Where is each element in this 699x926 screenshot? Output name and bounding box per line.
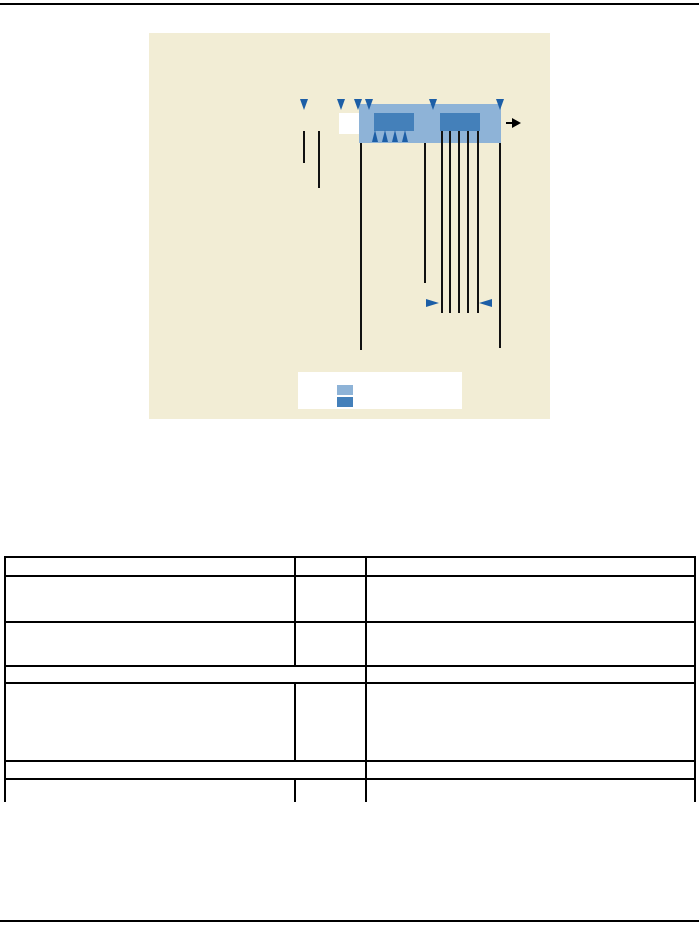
figure-canvas — [149, 33, 550, 419]
data-block — [440, 113, 480, 131]
event-marker-down-icon — [300, 99, 308, 110]
spec-table — [4, 556, 696, 802]
callout-line — [360, 143, 362, 350]
event-marker-down-icon — [496, 99, 504, 110]
event-marker-up-icon — [402, 130, 408, 142]
table-cell — [6, 577, 296, 621]
table-row — [6, 780, 694, 802]
table-cell — [6, 558, 296, 575]
event-marker-down-icon — [337, 99, 345, 110]
callout-line — [477, 131, 479, 313]
callout-line — [449, 131, 451, 313]
table-cell — [367, 623, 694, 665]
table-cell — [367, 558, 694, 575]
event-marker-up-icon — [382, 130, 388, 142]
table-cell — [6, 762, 367, 778]
table-cell — [367, 667, 694, 682]
event-marker-up-icon — [392, 130, 398, 142]
table-row — [6, 558, 694, 577]
callout-line — [467, 131, 469, 313]
table-cell — [296, 623, 367, 665]
data-block — [374, 113, 414, 131]
table-cell — [6, 780, 296, 802]
table-row-merged — [6, 667, 694, 684]
pre-gap-box — [339, 113, 359, 134]
span-arrow-left-icon — [479, 299, 492, 307]
table-cell — [296, 780, 367, 802]
callout-line — [303, 131, 305, 163]
document-page — [0, 0, 699, 926]
table-cell — [367, 762, 694, 778]
event-marker-down-icon — [365, 99, 373, 110]
callout-line — [318, 131, 320, 188]
table-cell — [296, 558, 367, 575]
table-cell — [367, 684, 694, 760]
callout-line — [424, 143, 426, 283]
top-rule — [0, 3, 699, 5]
event-marker-up-icon — [372, 130, 378, 142]
event-marker-down-icon — [354, 99, 362, 110]
event-marker-down-icon — [429, 99, 437, 110]
legend-swatch-2 — [337, 397, 353, 407]
table-cell — [6, 623, 296, 665]
table-cell — [367, 577, 694, 621]
table-row — [6, 623, 694, 667]
span-arrow-right-icon — [426, 299, 439, 307]
callout-line — [441, 131, 443, 313]
table-cell — [367, 780, 694, 802]
legend-swatch-1 — [337, 385, 353, 395]
table-cell — [6, 684, 296, 760]
table-cell — [6, 667, 367, 682]
callout-line — [499, 143, 501, 348]
table-row — [6, 684, 694, 762]
flow-arrow-icon — [512, 118, 521, 128]
table-row-merged — [6, 762, 694, 780]
legend-box — [298, 372, 462, 409]
bottom-rule — [0, 920, 699, 922]
table-cell — [296, 577, 367, 621]
table-row — [6, 577, 694, 623]
table-cell — [296, 684, 367, 760]
callout-line — [458, 131, 460, 313]
